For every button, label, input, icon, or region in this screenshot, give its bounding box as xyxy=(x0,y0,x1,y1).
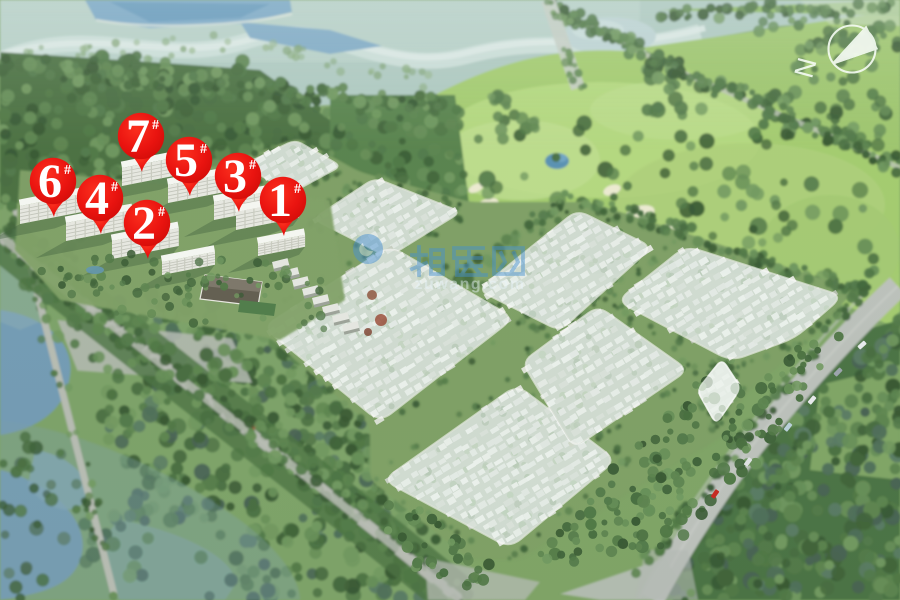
svg-text:zuwang.com: zuwang.com xyxy=(414,276,525,293)
svg-text:#: # xyxy=(249,158,256,173)
svg-text:#: # xyxy=(200,142,207,157)
svg-text:#: # xyxy=(158,205,165,220)
svg-text:7: 7 xyxy=(126,110,150,163)
svg-text:3: 3 xyxy=(223,150,247,203)
svg-text:#: # xyxy=(294,182,301,197)
svg-text:#: # xyxy=(64,163,71,178)
svg-text:6: 6 xyxy=(38,155,62,208)
svg-text:2: 2 xyxy=(132,197,156,250)
svg-text:5: 5 xyxy=(174,134,198,187)
svg-text:1: 1 xyxy=(268,174,292,227)
svg-text:4: 4 xyxy=(85,172,109,225)
svg-text:#: # xyxy=(152,118,159,133)
svg-text:#: # xyxy=(111,180,118,195)
